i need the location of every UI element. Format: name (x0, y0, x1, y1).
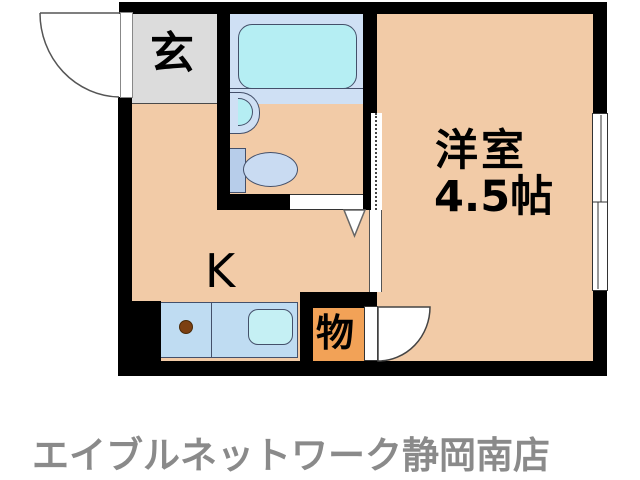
wall-bottom (118, 361, 607, 376)
stove-burner-icon (179, 320, 193, 334)
entrance-door-arc (40, 13, 119, 97)
western-room-label: 洋室 (435, 130, 527, 173)
agency-name: エイブルネットワーク静岡南店 (32, 437, 550, 474)
western-room-size-label: 4.5帖 (434, 176, 553, 219)
floorplan-canvas: 玄 K 洋室 4.5帖 物 エイブルネットワーク静岡南店 (0, 0, 640, 480)
wall-entrance-bathroom (217, 14, 230, 210)
partition-dashed-line (375, 113, 377, 210)
toilet-bowl (243, 152, 298, 187)
window-right (592, 113, 608, 291)
wall-storage-left (300, 292, 313, 361)
wall-bathroom-westernroom-lower (363, 113, 371, 210)
wall-bathroom-bottom (217, 194, 290, 210)
wall-left-bottom-block (118, 301, 161, 361)
wall-right-upper (593, 2, 607, 113)
kitchen-label: K (205, 248, 235, 294)
western-room-door-leaf (364, 306, 378, 361)
entrance-label: 玄 (150, 32, 194, 76)
bathtub (238, 24, 357, 89)
entrance-door-leaf (120, 12, 133, 98)
kitchen-counter-divider (211, 302, 212, 358)
wall-top (119, 2, 607, 14)
storage-label: 物 (316, 314, 354, 352)
wall-left (118, 97, 132, 303)
bathroom-door-opening (290, 194, 363, 210)
doorway-kitchen-westernroom (369, 210, 382, 292)
wall-bathroom-westernroom-upper (363, 14, 377, 113)
kitchen-sink (248, 309, 293, 345)
